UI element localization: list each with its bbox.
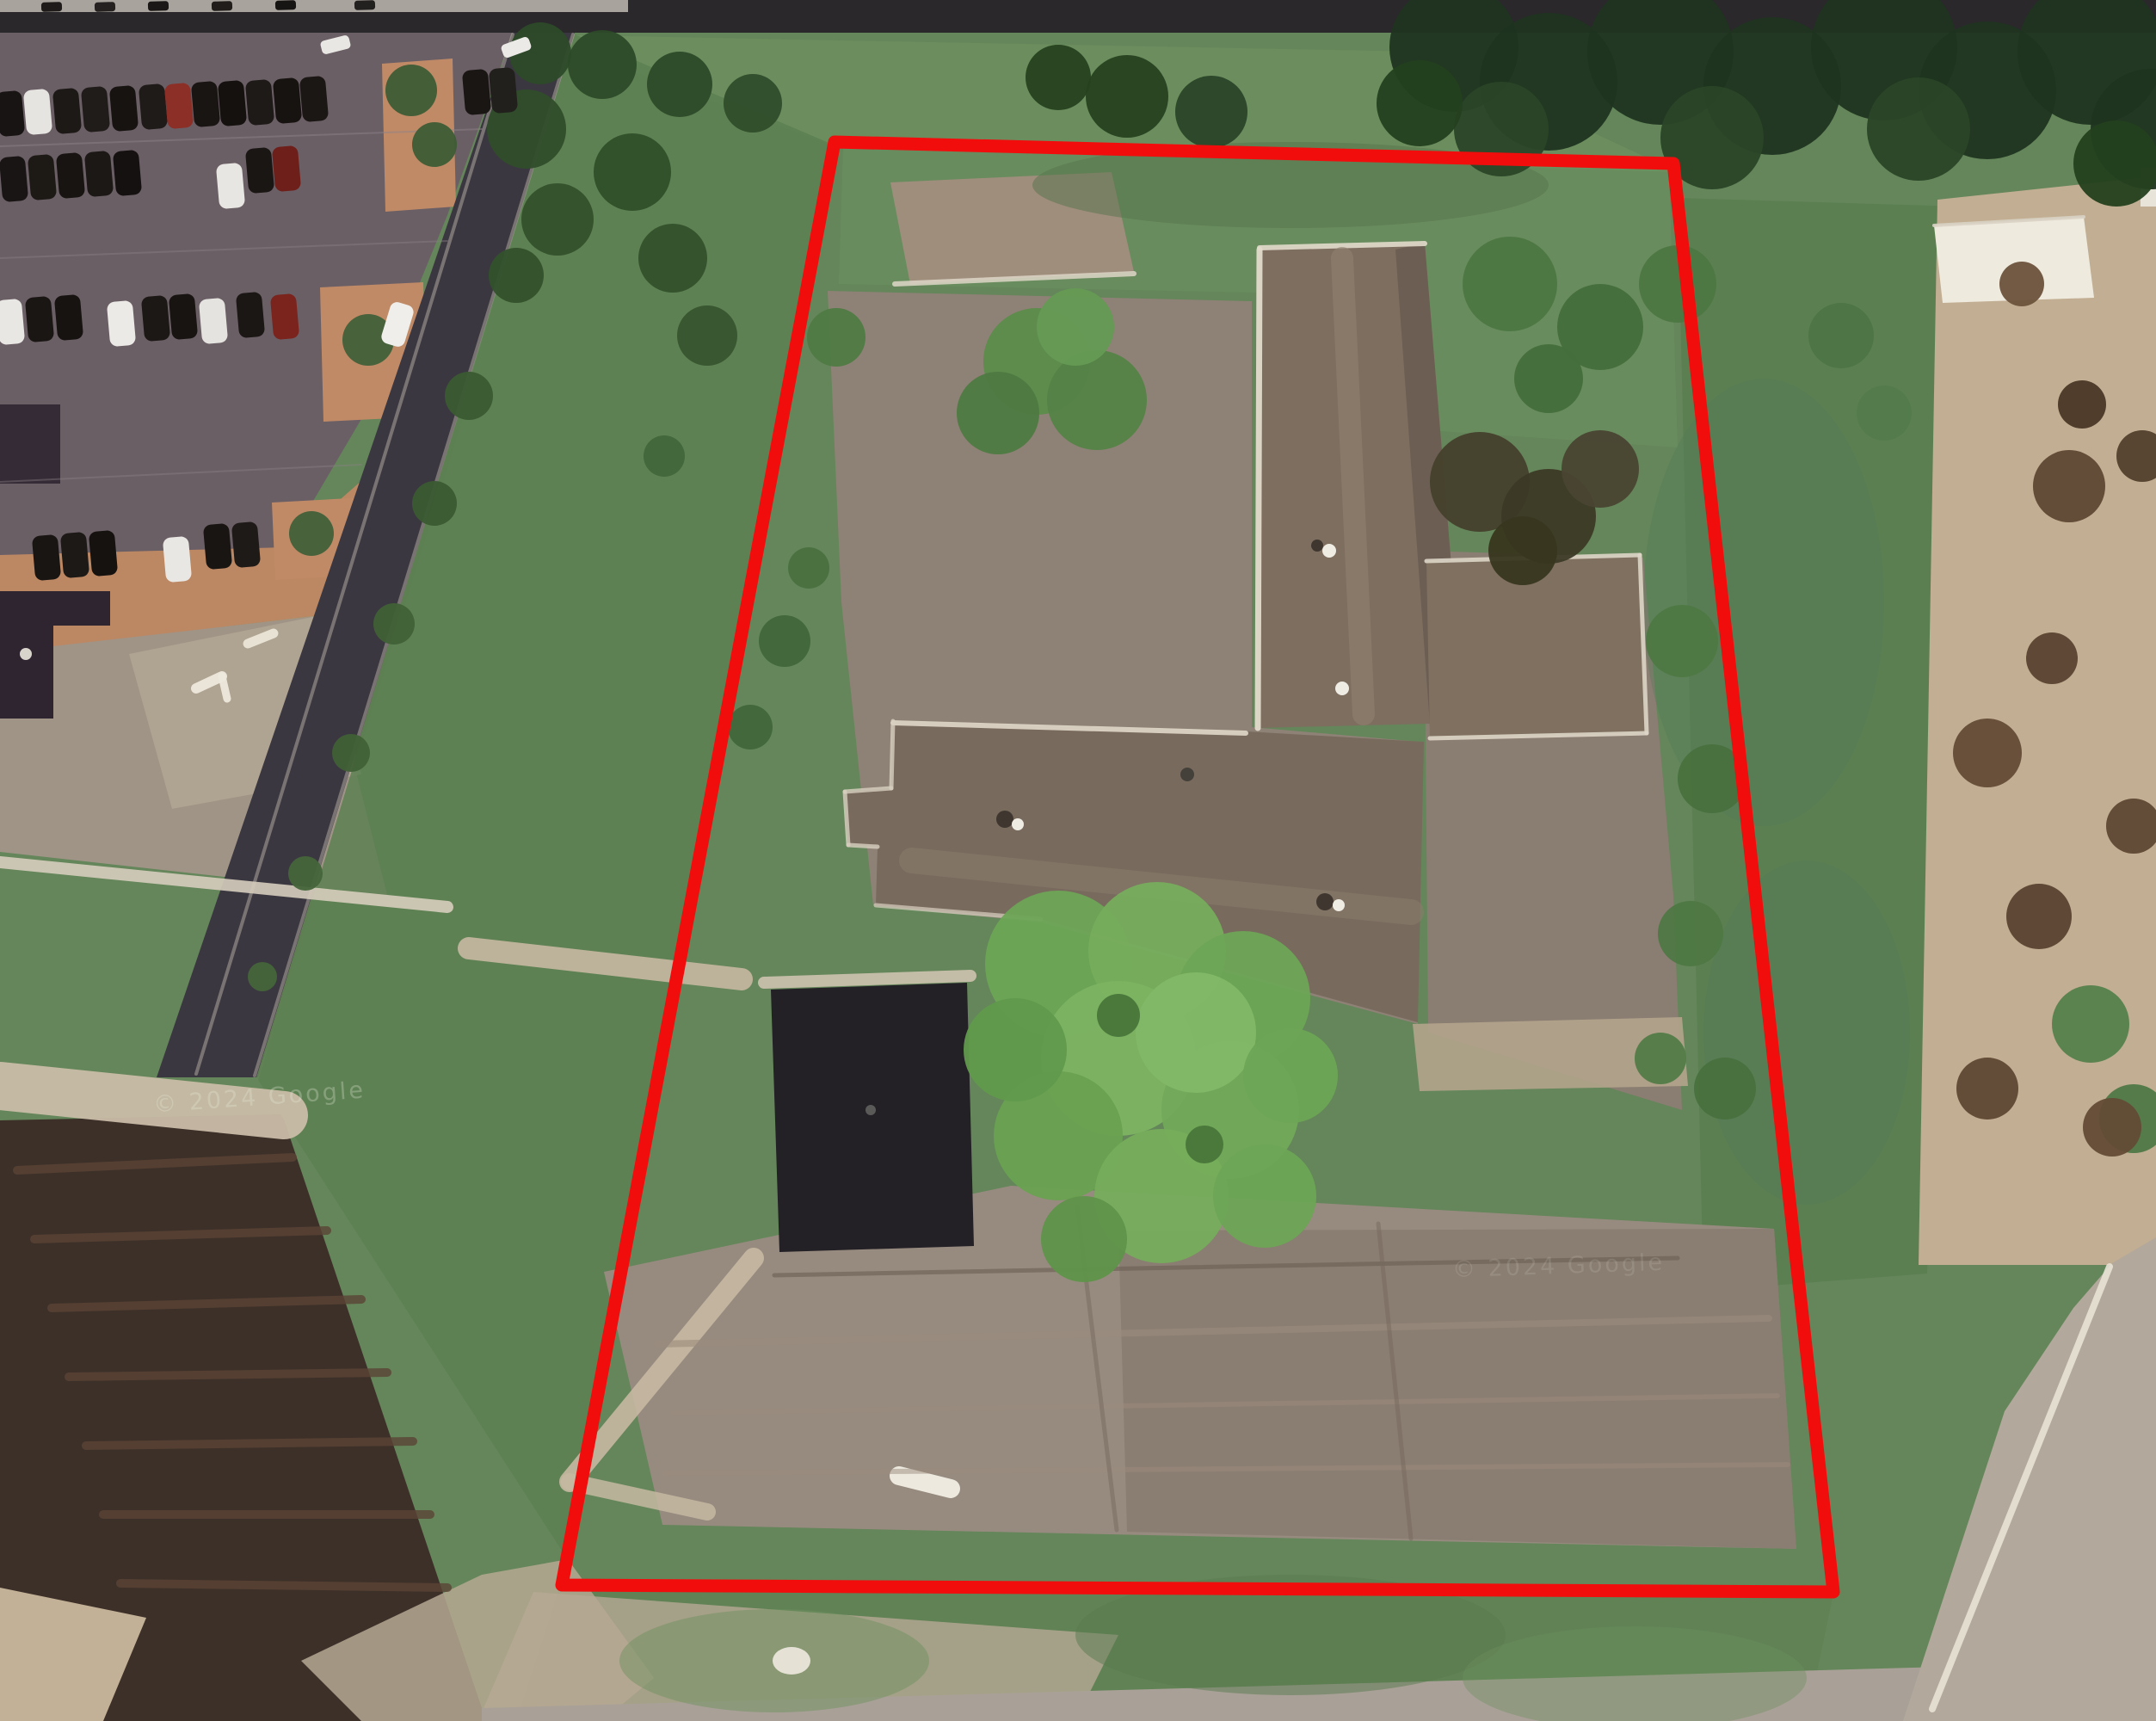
car [109,85,139,132]
car [169,293,198,340]
tree-canopy [1857,386,1912,441]
tree-canopy [1808,303,1874,368]
shrub [759,615,810,667]
east-grass-tint [1643,379,1884,826]
tree-canopy [647,52,712,117]
tree-canopy [385,65,437,116]
car [164,83,194,129]
tree-canopy [248,962,277,991]
car [139,83,168,130]
paint-arrow [222,676,227,699]
car [212,1,232,11]
paint-mark [899,1476,951,1489]
tree-canopy [644,435,685,477]
tree-canopy [957,372,1039,454]
roof-vent [20,648,32,660]
debris [1999,262,2044,306]
terrain-layer [0,0,2156,1721]
tree-canopy [724,74,782,133]
debris [2083,1098,2141,1157]
tree-canopy [677,305,737,366]
shrub [788,547,829,589]
tree-canopy [1136,972,1256,1093]
roof-vent [1311,540,1323,552]
tree-canopy [332,734,370,772]
car [275,0,296,10]
car [54,294,83,341]
shrub [728,705,773,749]
tree-canopy [521,183,594,256]
roof-vent [1333,899,1345,911]
car [299,76,329,122]
roof-vent [996,811,1013,828]
tree-canopy [1377,60,1463,146]
roof-vent [1335,682,1349,695]
car [148,1,169,11]
tree-canopy [289,511,334,556]
car [272,145,301,192]
car [203,523,232,570]
tree-canopy [2073,120,2156,207]
car [245,79,274,126]
car [489,67,518,114]
tree-canopy [1047,350,1147,450]
tree-canopy [1213,1144,1316,1248]
tree-canopy [1086,55,1168,138]
roof-vent [1012,818,1024,830]
car [231,521,261,568]
car [95,2,115,12]
car [0,90,25,137]
east-grass-tint [1703,860,1910,1205]
debris [2033,450,2105,522]
tree-canopy [1646,605,1718,677]
tree-canopy [288,856,323,891]
roof-parapet [848,845,878,847]
car [245,147,274,194]
car [354,0,375,10]
debris [2026,632,2078,684]
tree-canopy [1041,1196,1127,1282]
car [81,86,110,133]
satellite-view: © 2024 Google © 2024 Google [0,0,2156,1721]
tree-canopy [638,224,707,293]
tree-canopy [373,603,415,645]
debris [1953,719,2022,787]
roof-vent [1322,544,1336,558]
tree-canopy [964,998,1067,1101]
car [218,80,247,126]
tree-canopy [568,30,637,99]
field-row [120,1583,447,1588]
roof-parapet [891,721,893,788]
carport-roof [0,404,60,484]
car [28,154,57,200]
car [270,293,299,340]
white-spot [773,1647,810,1675]
tree-canopy [1175,76,1247,148]
tree-canopy [1026,45,1091,110]
tree-canopy [1463,237,1557,331]
tree-canopy [2052,985,2129,1063]
tree-canopy [1037,288,1114,366]
car [107,300,136,347]
field-row [69,1372,387,1377]
tree-canopy [1097,994,1140,1037]
car [25,296,54,342]
car [41,2,62,12]
tree-canopy [412,122,457,167]
car [23,89,52,135]
debris [2006,884,2072,949]
tree-canopy [1658,901,1723,966]
car [0,299,25,345]
gym-outbuilding [771,983,974,1252]
tree-canopy [1635,1033,1686,1084]
field-row [86,1441,413,1446]
car [52,88,82,134]
car [236,292,265,338]
roof-vent [1180,768,1194,781]
car [84,151,114,197]
car [199,298,228,344]
car [32,534,61,581]
car [0,156,28,202]
tree-canopy [412,481,457,526]
tree-canopy [1867,77,1970,181]
tree-canopy [1243,1028,1338,1123]
car [56,152,85,199]
car [462,69,491,115]
tree-canopy [1488,516,1557,585]
debris [2058,380,2106,429]
debris [1956,1058,2018,1120]
south-dirt-field-dark [1118,1229,1796,1549]
roof-parapet [1258,250,1260,728]
aerial-imagery [0,0,2156,1721]
tree-canopy [1514,344,1583,413]
tree-canopy [807,308,865,367]
car [89,530,118,577]
tree-canopy [489,248,544,303]
tree-canopy [594,133,671,211]
car [163,536,192,583]
tree-canopy [1694,1058,1756,1120]
car [60,532,89,578]
car [191,81,220,127]
car [113,150,142,196]
road-shoulder [0,1086,284,1115]
distant-road [0,0,628,12]
roof-vent [1316,893,1334,910]
gravel-strip [764,976,970,983]
car [216,163,245,209]
car [273,77,302,124]
tree-canopy [1186,1126,1223,1163]
car [141,295,170,342]
roof-vent [865,1105,876,1115]
tree-canopy [1562,430,1639,508]
annex-roof [1426,555,1647,738]
tree-canopy [445,372,493,420]
